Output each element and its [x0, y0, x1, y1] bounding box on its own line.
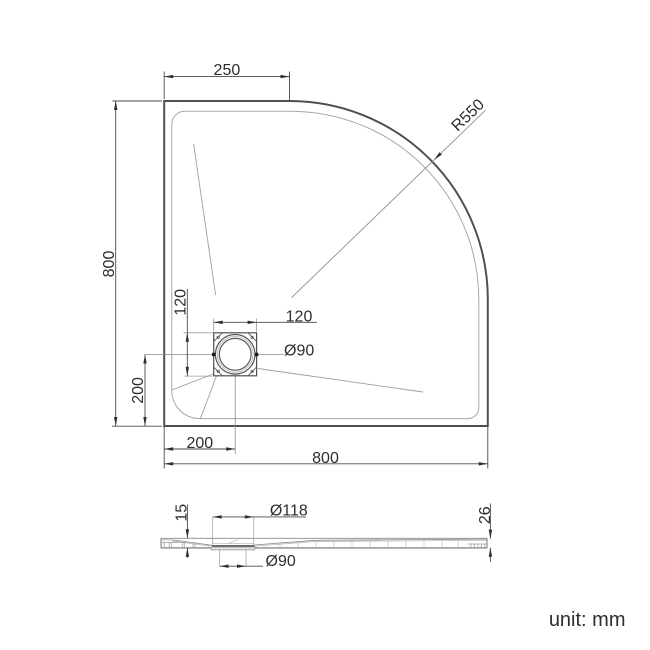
svg-text:Ø90: Ø90: [266, 553, 296, 570]
svg-text:26: 26: [477, 506, 494, 524]
svg-text:250: 250: [214, 62, 241, 79]
svg-text:120: 120: [173, 289, 190, 316]
svg-text:unit: mm: unit: mm: [549, 609, 626, 631]
svg-text:Ø118: Ø118: [270, 502, 308, 519]
svg-text:200: 200: [186, 435, 213, 452]
svg-text:Ø90: Ø90: [284, 342, 314, 359]
svg-text:800: 800: [101, 251, 118, 278]
svg-text:800: 800: [312, 450, 339, 467]
svg-text:R550: R550: [449, 96, 488, 135]
svg-text:120: 120: [286, 308, 313, 325]
svg-text:15: 15: [174, 504, 191, 522]
svg-text:200: 200: [130, 377, 147, 404]
